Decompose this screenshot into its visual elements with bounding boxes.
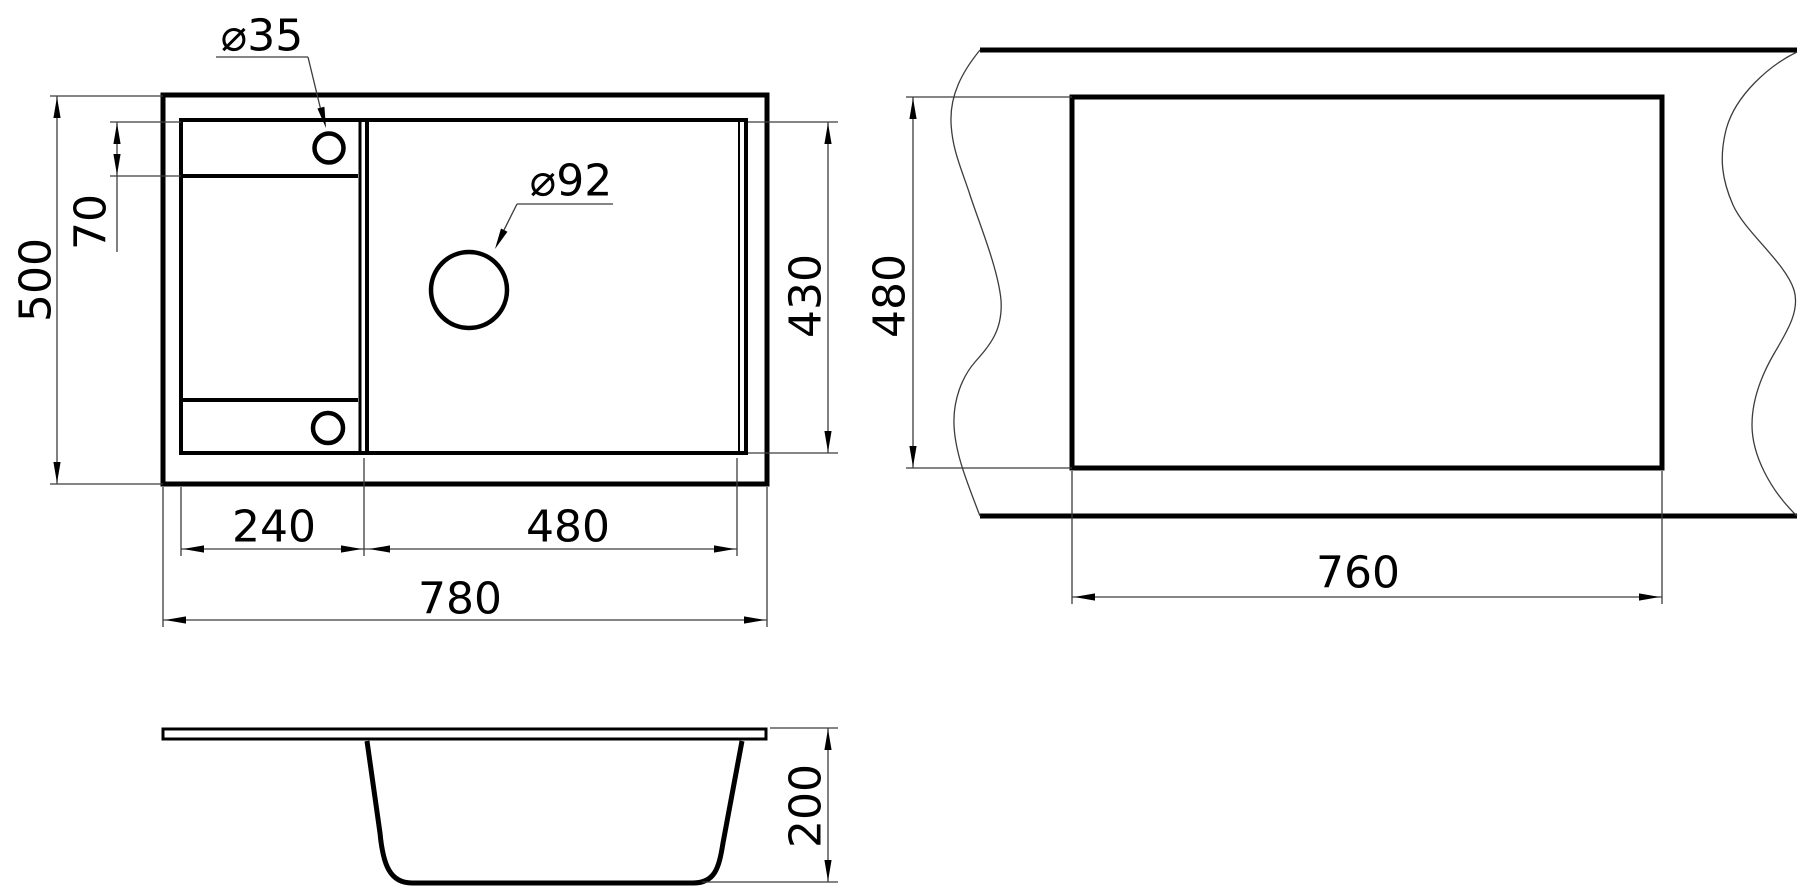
break-line-left <box>951 50 1001 516</box>
flange-profile <box>163 729 766 739</box>
sink-inner-rim <box>181 120 746 453</box>
dim-inner-height: 430 <box>748 122 838 453</box>
dim-arrow-up <box>53 97 60 118</box>
hole-35-label: ⌀35 <box>221 11 303 62</box>
dim-bowl-depth: 200 <box>702 728 838 882</box>
top-view: ⌀35 ⌀92 500 70 <box>11 11 839 628</box>
dim-arrow-down <box>53 462 60 483</box>
dim-arrow-down <box>824 431 831 452</box>
cutout-view: 480 760 <box>865 50 1798 604</box>
sink-outer-outline <box>163 95 767 484</box>
tap-hole-bottom <box>313 413 343 443</box>
dim-480-label: 480 <box>526 502 610 553</box>
dim-overall-height: 500 <box>11 96 164 484</box>
leader-hole-35: ⌀35 <box>216 11 329 129</box>
dim-arrow-up <box>113 123 120 144</box>
dim-200-label: 200 <box>781 764 832 848</box>
dim-arrow-up <box>909 98 916 119</box>
tap-hole-top <box>315 134 344 163</box>
hole-92-label: ⌀92 <box>530 156 612 207</box>
dim-500-label: 500 <box>11 238 62 322</box>
dim-arrow-right <box>744 616 765 623</box>
drawing-canvas: ⌀35 ⌀92 500 70 <box>0 0 1800 889</box>
section-view: 200 <box>163 728 838 883</box>
dim-760-label: 760 <box>1316 548 1400 599</box>
cutout-rectangle <box>1072 97 1662 468</box>
dim-arrow-right <box>714 545 735 552</box>
dim-cutout-height: 480 <box>865 97 1073 468</box>
leader-hole-92: ⌀92 <box>492 156 613 251</box>
dim-430-label: 430 <box>781 254 832 338</box>
dim-arrow-left <box>1074 593 1095 600</box>
dim-240-label: 240 <box>232 502 316 553</box>
dim-arrow-up <box>824 729 831 750</box>
bowl-profile <box>367 741 742 883</box>
dim-arrow-left <box>183 545 204 552</box>
leader-92-arrow <box>492 229 508 251</box>
leader-35-arrow <box>317 107 329 129</box>
dim-arrow-up <box>824 123 831 144</box>
dim-arrow-down <box>909 446 916 467</box>
dim-cutout-480-label: 480 <box>865 254 916 338</box>
dim-arrow-left <box>369 545 390 552</box>
drawing-sheet: ⌀35 ⌀92 500 70 <box>0 0 1800 889</box>
dim-arrow-right <box>1639 593 1660 600</box>
dim-cutout-width: 760 <box>1072 471 1662 604</box>
dim-arrow-left <box>165 616 186 623</box>
break-line-right <box>1722 52 1797 516</box>
dim-arrow-down <box>824 860 831 881</box>
dim-section-widths: 240 480 <box>181 458 737 556</box>
dim-70-label: 70 <box>66 194 117 250</box>
faucet-hole <box>431 252 507 328</box>
dim-arrow-down <box>113 154 120 175</box>
dim-arrow-right <box>341 545 362 552</box>
dim-780-label: 780 <box>418 574 502 625</box>
